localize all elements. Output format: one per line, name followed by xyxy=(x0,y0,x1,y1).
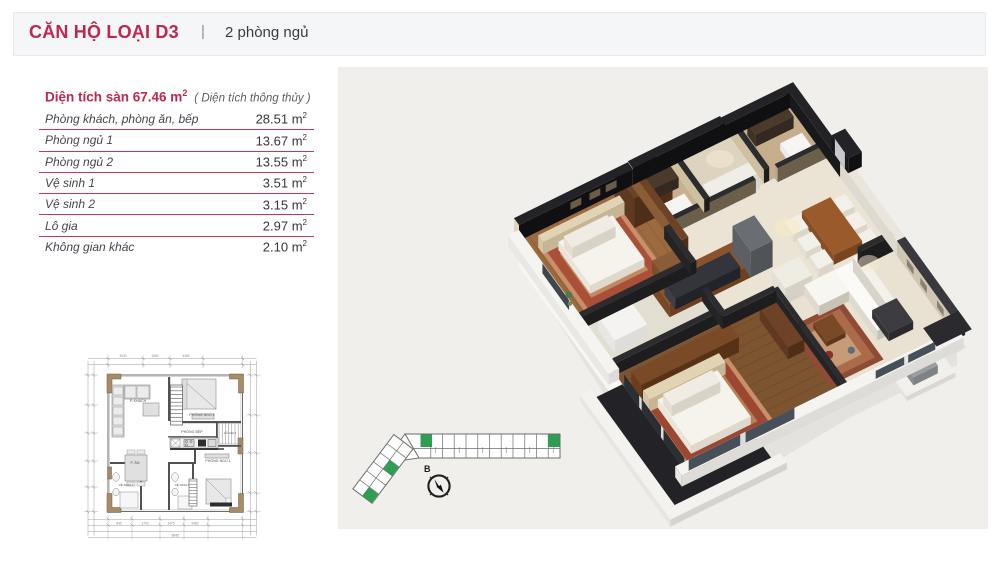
svg-text:VỆ SINH 1: VỆ SINH 1 xyxy=(119,482,134,487)
svg-text:1060: 1060 xyxy=(151,354,158,358)
svg-text:8645: 8645 xyxy=(172,534,179,538)
svg-text:P. KHÁCH: P. KHÁCH xyxy=(130,399,147,403)
svg-text:5480: 5480 xyxy=(191,522,198,526)
svg-text:PHÒNG BẾP: PHÒNG BẾP xyxy=(181,429,203,434)
svg-text:VỆ SINH 2: VỆ SINH 2 xyxy=(175,482,190,487)
svg-text:P. ĂN: P. ĂN xyxy=(131,461,140,465)
svg-text:1700: 1700 xyxy=(141,522,148,526)
svg-text:1475: 1475 xyxy=(167,522,174,526)
svg-text:PHÒNG NGỦ 1: PHÒNG NGỦ 1 xyxy=(205,458,230,463)
svg-text:PHÒNG NGỦ 2: PHÒNG NGỦ 2 xyxy=(189,412,214,417)
svg-text:3430: 3430 xyxy=(119,354,126,358)
svg-text:B: B xyxy=(424,464,431,474)
svg-text:4480: 4480 xyxy=(182,354,189,358)
svg-text:LÔ GIA 3: LÔ GIA 3 xyxy=(224,430,237,435)
svg-text:845: 845 xyxy=(116,522,122,526)
